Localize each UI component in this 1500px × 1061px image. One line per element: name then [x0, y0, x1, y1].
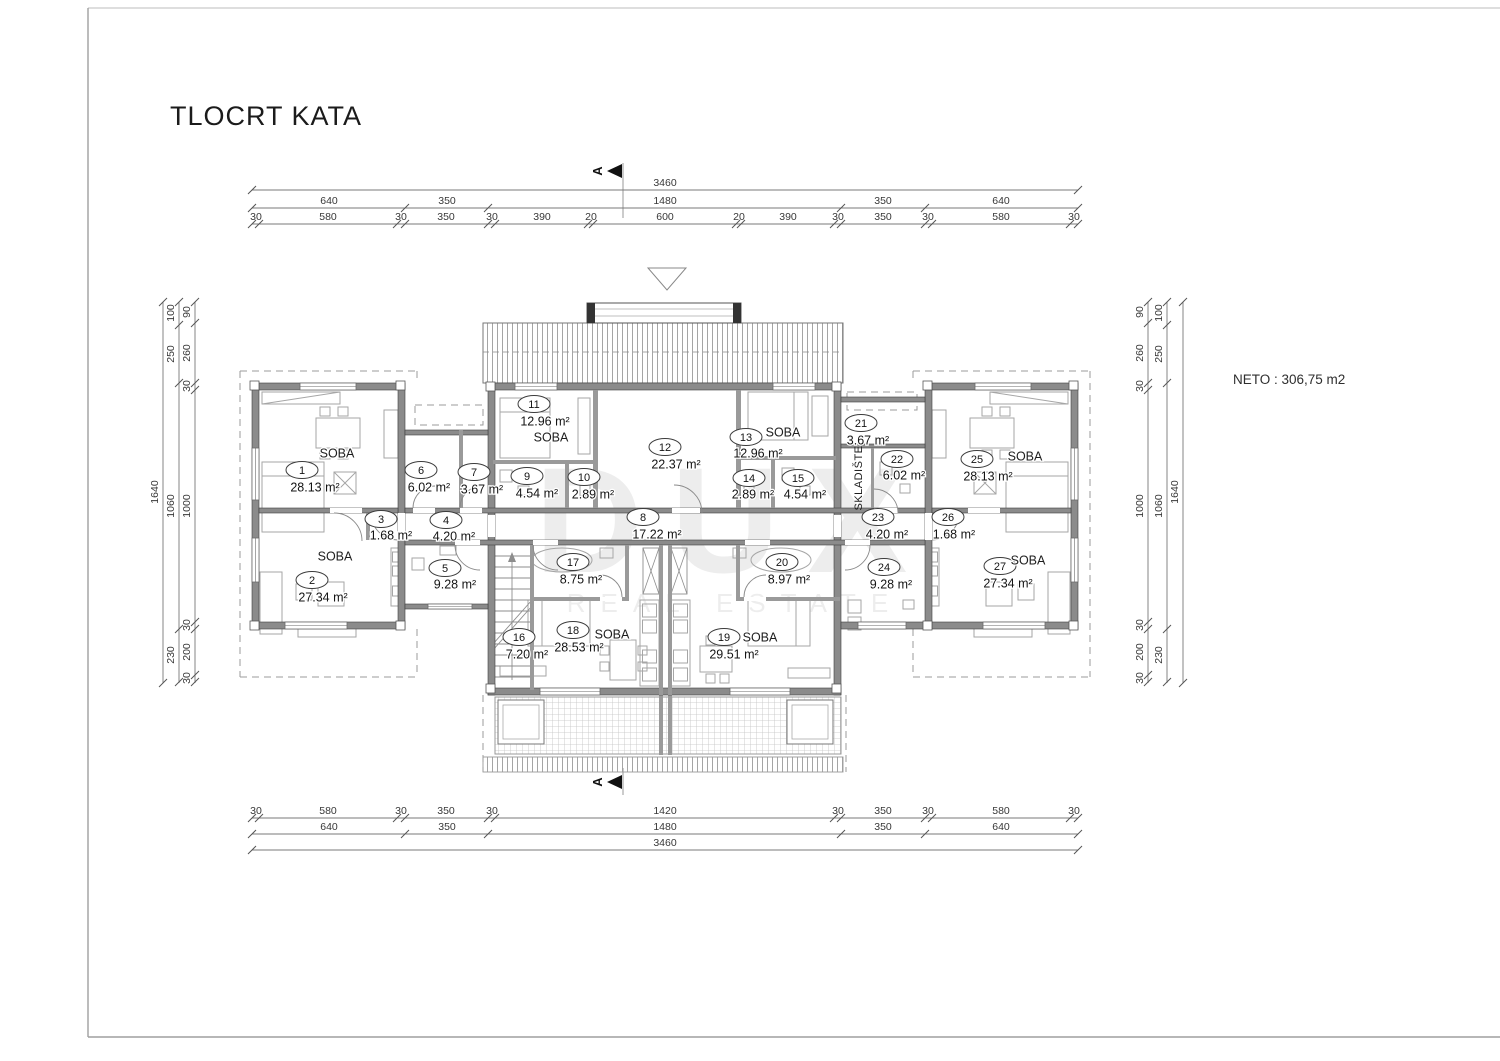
- dim-label: 200: [1134, 643, 1146, 661]
- room-area: 28.53 m²: [554, 640, 603, 654]
- dim-label: 1480: [653, 195, 677, 207]
- dim-label: 30: [832, 805, 844, 817]
- dim-label: 30: [1134, 672, 1146, 684]
- room-label: 66.02 m²: [405, 462, 450, 495]
- dim-label: 30: [486, 211, 498, 223]
- room-number: 15: [792, 473, 804, 485]
- dim-label: 350: [874, 805, 892, 817]
- dim-label: 200: [181, 643, 193, 661]
- entrance-arrow-triangle: [648, 268, 686, 290]
- room-number: 18: [567, 625, 579, 637]
- room-number: 16: [513, 632, 525, 644]
- room-label: 261.68 m²: [932, 509, 975, 542]
- dim-label: 350: [437, 211, 455, 223]
- dim-label: 350: [874, 211, 892, 223]
- room-area: 6.02 m²: [883, 468, 925, 482]
- room-type-label: SOBA: [766, 425, 801, 439]
- room-type-label: SOBA: [318, 549, 353, 563]
- room-type-label: SOBA: [534, 430, 569, 444]
- dim-label: 350: [874, 821, 892, 833]
- dim-label: 3460: [653, 837, 677, 849]
- dim-label: 30: [832, 211, 844, 223]
- storage-room-label: SKLADIŠTE: [852, 445, 865, 510]
- net-area-label: NETO : 306,75 m2: [1233, 372, 1345, 387]
- room-number: 7: [471, 467, 477, 479]
- room-area: 28.13 m²: [290, 480, 339, 494]
- room-label: 1929.51 m²SOBA: [708, 629, 778, 662]
- dim-label: 1640: [1169, 480, 1181, 504]
- dim-label: 20: [733, 211, 745, 223]
- dim-label: 30: [250, 211, 262, 223]
- dim-label: 20: [585, 211, 597, 223]
- room-area: 12.96 m²: [733, 446, 782, 460]
- room-area: 1.68 m²: [370, 528, 412, 542]
- dim-label: 30: [486, 805, 498, 817]
- room-area: 12.96 m²: [520, 414, 569, 428]
- room-label: 213.67 m²: [845, 415, 889, 448]
- room-area: 2.89 m²: [732, 487, 774, 501]
- dim-label: 1060: [1153, 494, 1165, 518]
- dim-label: 390: [533, 211, 551, 223]
- dim-label: 250: [165, 345, 177, 363]
- room-number: 12: [659, 442, 671, 454]
- room-number: 27: [994, 561, 1006, 573]
- room-number: 6: [418, 465, 424, 477]
- dim-label: 580: [319, 211, 337, 223]
- room-number: 22: [891, 454, 903, 466]
- room-number: 3: [378, 514, 384, 526]
- room-type-label: SOBA: [320, 446, 355, 460]
- dim-label: 260: [181, 344, 193, 362]
- room-type-label: SOBA: [1011, 553, 1046, 567]
- dim-label: 100: [165, 304, 177, 322]
- room-number: 23: [872, 512, 884, 524]
- section-arrow-icon: [607, 775, 622, 789]
- room-area: 4.54 m²: [516, 486, 558, 500]
- dim-label: 640: [992, 821, 1010, 833]
- dim-label: 1420: [653, 805, 677, 817]
- room-type-label: SOBA: [743, 630, 778, 644]
- dim-label: 100: [1153, 304, 1165, 322]
- room-number: 9: [524, 471, 530, 483]
- room-number: 25: [971, 454, 983, 466]
- room-area: 8.97 m²: [768, 572, 810, 586]
- dim-label: 390: [779, 211, 797, 223]
- room-area: 17.22 m²: [632, 527, 681, 541]
- room-label: 59.28 m²: [429, 560, 476, 592]
- room-type-label: SOBA: [1008, 449, 1043, 463]
- room-number: 20: [776, 557, 788, 569]
- room-number: 5: [442, 563, 448, 575]
- dim-label: 640: [320, 195, 338, 207]
- room-number: 10: [578, 472, 590, 484]
- dim-label: 30: [1068, 211, 1080, 223]
- room-label: 227.34 m²SOBA: [296, 549, 353, 604]
- room-number: 2: [309, 575, 315, 587]
- dim-label: 90: [181, 306, 193, 318]
- room-number: 11: [528, 399, 539, 411]
- dim-label: 640: [320, 821, 338, 833]
- terrace: [483, 695, 843, 772]
- room-label: 1112.96 m²SOBA: [518, 396, 570, 445]
- room-number: 1: [299, 465, 305, 477]
- floor-plan-drawing: DUX REAL ESTATE TLOCRT KATA NETO : 306,7…: [0, 0, 1500, 1061]
- room-label: 2727.34 m²SOBA: [983, 553, 1046, 590]
- dim-label: 90: [1134, 306, 1146, 318]
- section-arrow-icon: [607, 164, 622, 178]
- dim-label: 640: [992, 195, 1010, 207]
- dim-label: 30: [181, 380, 193, 392]
- dim-label: 250: [1153, 345, 1165, 363]
- dim-label: 350: [438, 821, 456, 833]
- dim-label: 1480: [653, 821, 677, 833]
- room-area: 1.68 m²: [933, 527, 975, 541]
- roof-hatch-band: [483, 268, 843, 383]
- room-area: 4.54 m²: [784, 487, 826, 501]
- room-area: 4.20 m²: [866, 527, 908, 541]
- room-label: 2528.13 m²SOBA: [961, 449, 1043, 483]
- dim-label: 230: [1153, 646, 1165, 664]
- room-area: 2.89 m²: [572, 487, 614, 501]
- room-area: 4.20 m²: [433, 529, 475, 543]
- section-letter: A: [590, 777, 605, 787]
- dim-label: 30: [922, 211, 934, 223]
- room-number: 14: [743, 473, 755, 485]
- room-number: 4: [443, 515, 449, 527]
- dim-label: 1060: [165, 494, 177, 518]
- dim-label: 580: [992, 805, 1010, 817]
- room-area: 28.13 m²: [963, 469, 1012, 483]
- room-number: 13: [740, 432, 752, 444]
- room-area: 7.20 m²: [506, 647, 548, 661]
- room-area: 6.02 m²: [408, 480, 450, 494]
- room-area: 22.37 m²: [651, 457, 700, 471]
- dim-label: 30: [922, 805, 934, 817]
- room-area: 3.67 m²: [847, 433, 889, 447]
- room-number: 26: [942, 512, 954, 524]
- room-area: 9.28 m²: [434, 577, 476, 591]
- dim-label: 1000: [181, 494, 193, 518]
- room-number: 24: [878, 562, 890, 574]
- drawing-title: TLOCRT KATA: [170, 101, 362, 131]
- dim-label: 30: [395, 211, 407, 223]
- dim-label: 30: [250, 805, 262, 817]
- dim-label: 230: [165, 646, 177, 664]
- dim-label: 350: [437, 805, 455, 817]
- room-label: 44.20 m²: [430, 512, 475, 544]
- section-letter: A: [590, 166, 605, 176]
- room-label: 167.20 m²: [503, 629, 548, 662]
- floor-plan-page: DUX REAL ESTATE TLOCRT KATA NETO : 306,7…: [0, 0, 1500, 1061]
- dim-label: 580: [319, 805, 337, 817]
- dim-label: 600: [656, 211, 674, 223]
- room-label: 128.13 m²SOBA: [286, 446, 355, 494]
- dim-label: 350: [438, 195, 456, 207]
- dim-label: 1000: [1134, 494, 1146, 518]
- room-number: 19: [718, 632, 730, 644]
- dim-label: 30: [181, 619, 193, 631]
- section-marker-top: A: [590, 163, 623, 218]
- room-type-label: SOBA: [595, 627, 630, 641]
- dim-label: 1640: [149, 480, 161, 504]
- dim-label: 580: [992, 211, 1010, 223]
- dim-label: 350: [874, 195, 892, 207]
- room-label: 73.67 m²: [458, 464, 503, 497]
- dim-label: 3460: [653, 177, 677, 189]
- room-area: 29.51 m²: [709, 647, 758, 661]
- dim-label: 30: [181, 672, 193, 684]
- room-area: 9.28 m²: [870, 577, 912, 591]
- room-area: 8.75 m²: [560, 572, 602, 586]
- dim-label: 30: [1068, 805, 1080, 817]
- dim-label: 30: [1134, 619, 1146, 631]
- dim-label: 260: [1134, 344, 1146, 362]
- dim-label: 30: [1134, 380, 1146, 392]
- room-label: 1828.53 m²SOBA: [554, 622, 630, 655]
- room-area: 27.34 m²: [298, 590, 347, 604]
- room-area: 3.67 m²: [461, 482, 503, 496]
- room-number: 17: [567, 557, 579, 569]
- room-number: 8: [640, 512, 646, 524]
- dim-label: 30: [395, 805, 407, 817]
- room-number: 21: [855, 418, 867, 430]
- room-area: 27.34 m²: [983, 576, 1032, 590]
